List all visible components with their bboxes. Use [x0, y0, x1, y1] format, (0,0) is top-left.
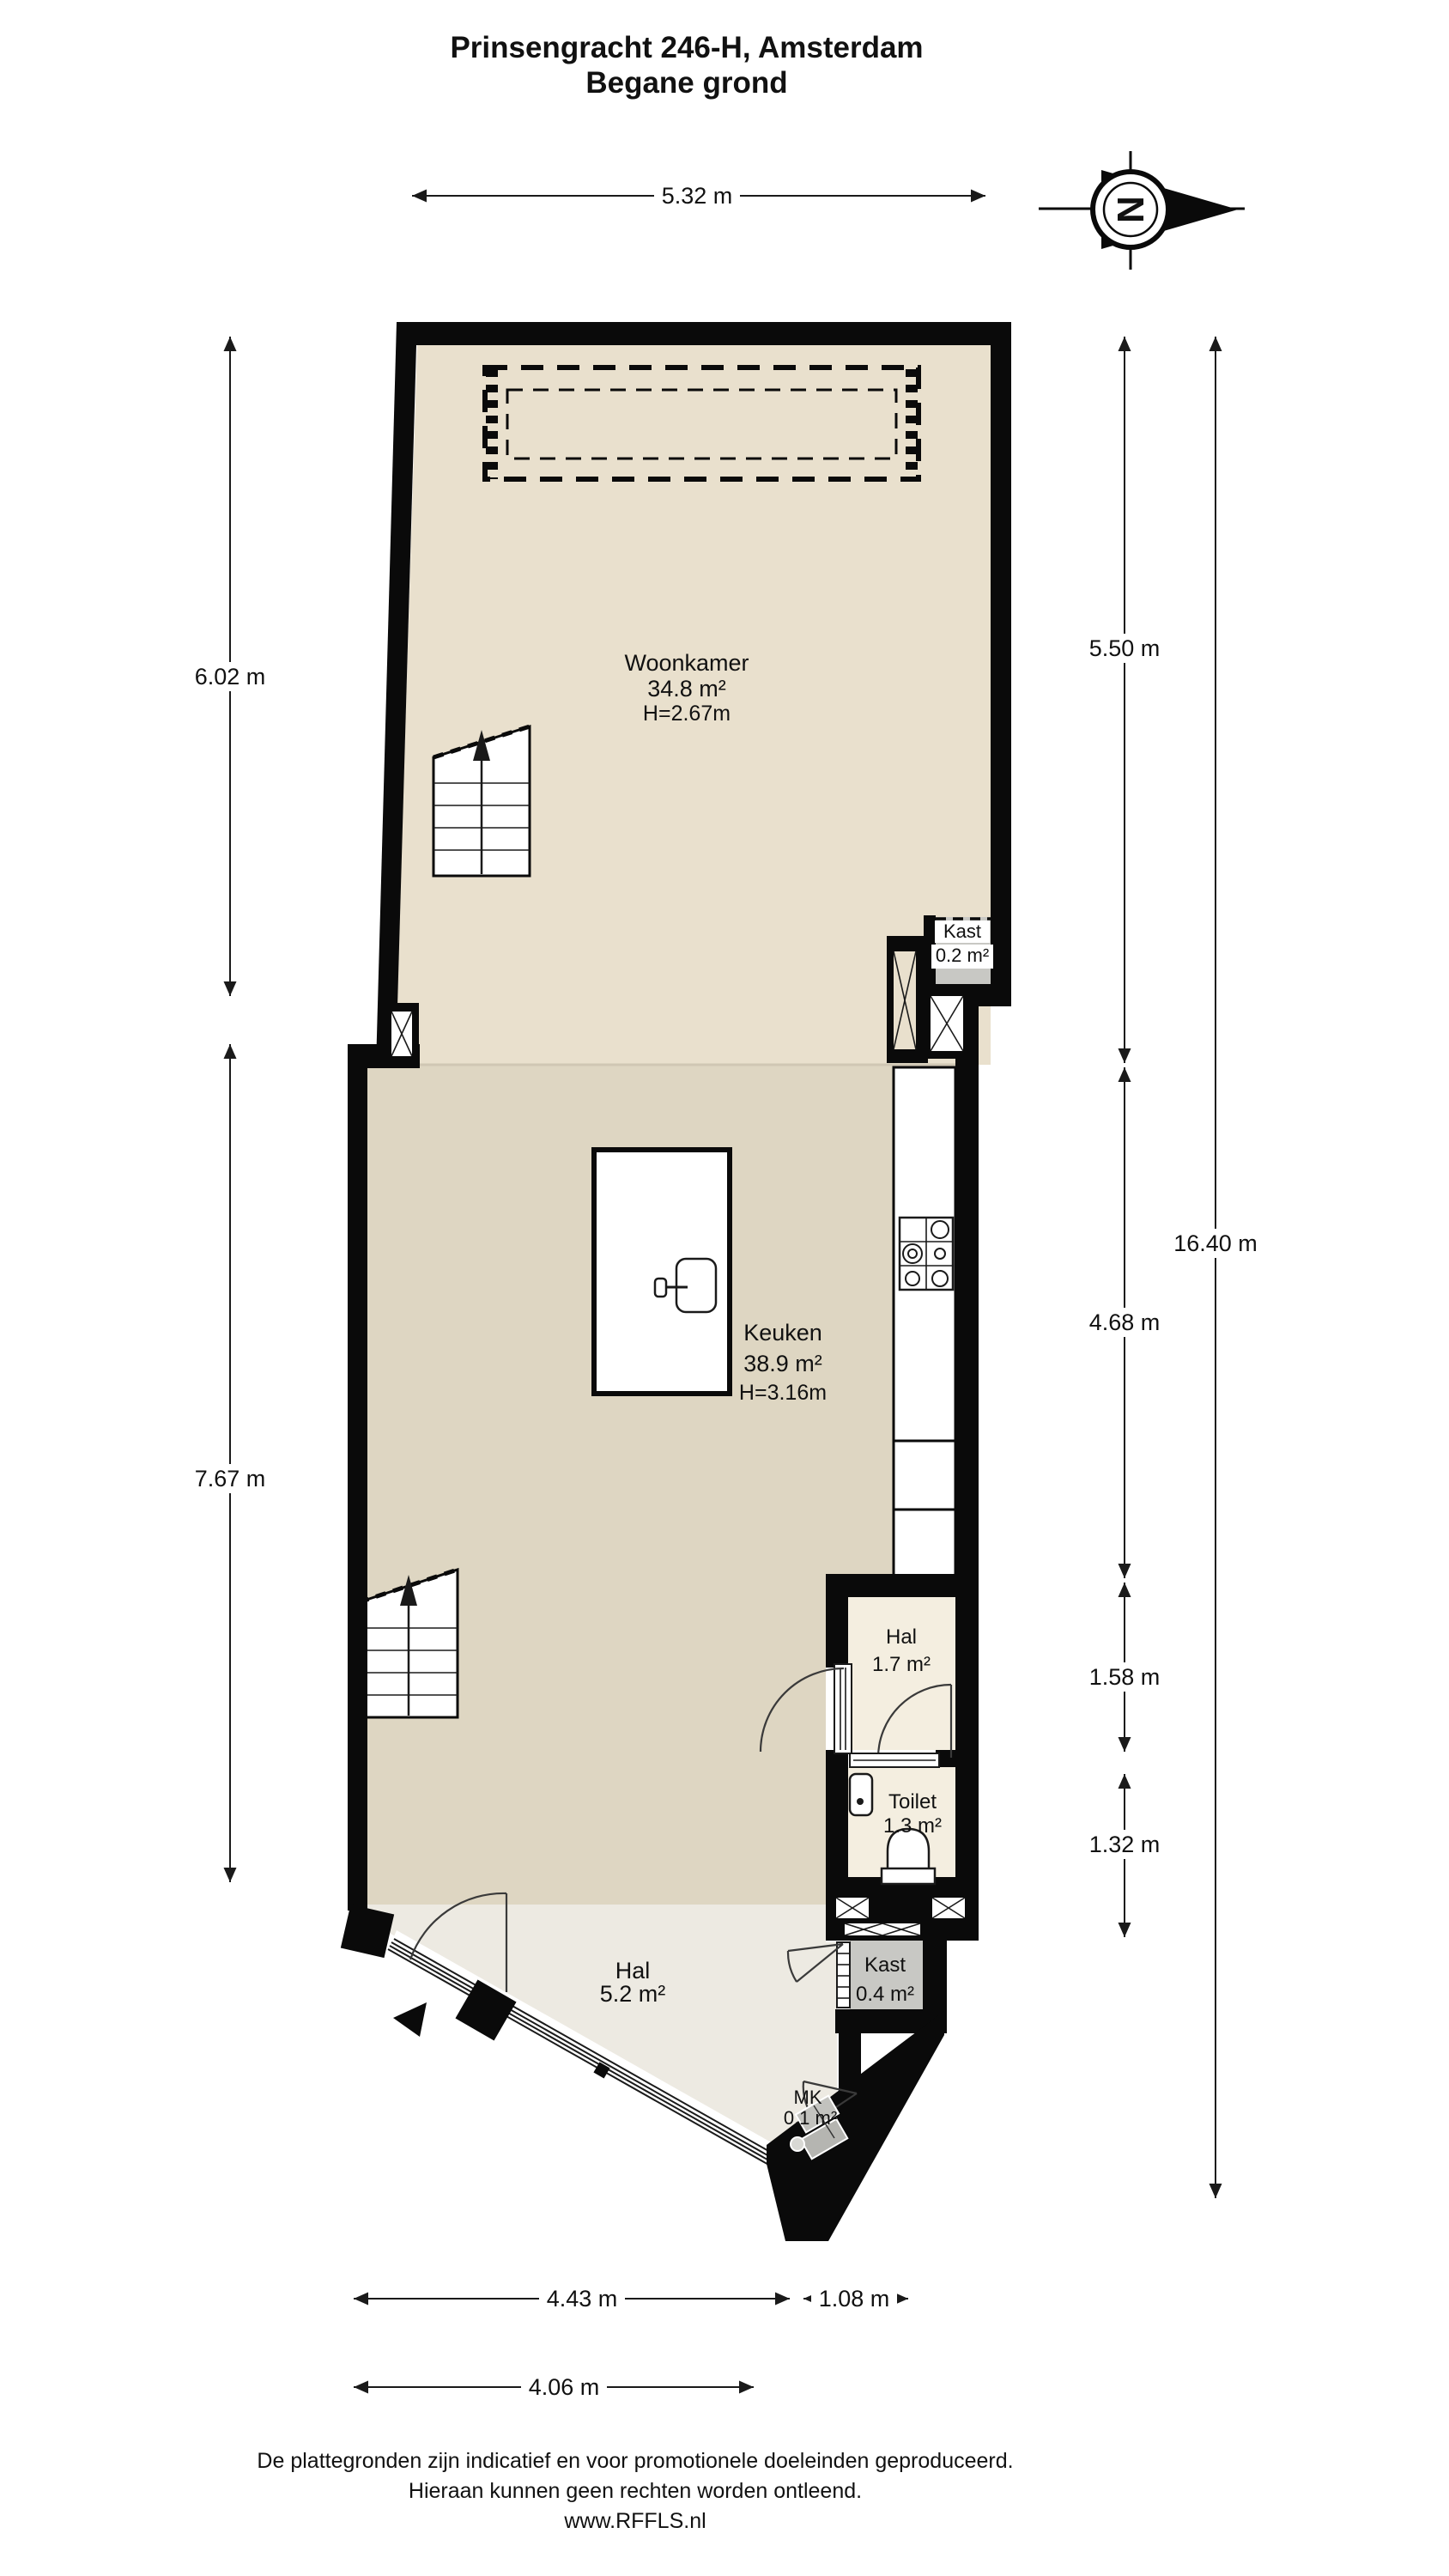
page-title: Prinsengracht 246-H, Amsterdam: [450, 31, 923, 64]
label-hal-klein: Hal: [886, 1625, 917, 1649]
label-kast-boven: Kast: [943, 920, 981, 942]
faucet-icon: [655, 1279, 666, 1297]
label-woonkamer: Woonkamer: [624, 650, 749, 676]
dimension-arrowhead: [224, 1868, 237, 1882]
label-kast-boven-area: 0.2 m²: [936, 945, 989, 966]
label-keuken: Keuken: [743, 1320, 822, 1346]
label-hal-klein-area: 1.7 m²: [872, 1653, 931, 1676]
toilet-sliding-door: [850, 1753, 939, 1767]
dimension-arrowhead: [1210, 337, 1222, 351]
room-hal-groot: [359, 1905, 837, 2145]
label-mk: MK: [794, 2087, 822, 2108]
dimension-label: 4.43 m: [547, 2286, 618, 2312]
dimension-label: 5.50 m: [1089, 635, 1161, 661]
label-kast-onder: Kast: [864, 1953, 906, 1977]
footer-disclaimer-1: De plattegronden zijn indicatief en voor…: [257, 2449, 1013, 2473]
dimension-label: 1.58 m: [1089, 1664, 1161, 1690]
dimension-arrowhead: [1119, 1048, 1131, 1063]
floor-plan: Woonkamer 34.8 m² H=2.67m Keuken 38.9 m²…: [0, 0, 1449, 2576]
dimension-arrowhead: [1119, 1737, 1131, 1752]
dimension-arrowhead: [354, 2381, 368, 2394]
dimension-arrowhead: [775, 2293, 790, 2306]
dimension-arrowhead: [1119, 1067, 1131, 1082]
dimension-label: 16.40 m: [1173, 1230, 1258, 1256]
label-toilet: Toilet: [888, 1790, 937, 1814]
dimension-arrowhead: [1119, 1774, 1131, 1789]
compass-letter: N: [1109, 196, 1151, 223]
label-mk-area: 0.1 m²: [784, 2107, 837, 2129]
dimension-label: 4.68 m: [1089, 1309, 1161, 1335]
kitchen-counter: [894, 1067, 955, 1577]
label-woonkamer-area: 34.8 m²: [647, 676, 726, 702]
dimension-label: 1.08 m: [819, 2286, 890, 2312]
dimension-arrowhead: [224, 337, 237, 351]
dimension-arrowhead: [971, 190, 985, 203]
dimension-arrowhead: [1119, 1923, 1131, 1937]
dimension-arrowhead: [354, 2293, 368, 2306]
floorplan-page: Woonkamer 34.8 m² H=2.67m Keuken 38.9 m²…: [0, 0, 1449, 2576]
dimension-label: 5.32 m: [662, 183, 733, 209]
dimension-arrowhead: [412, 190, 427, 203]
sink: [676, 1259, 716, 1312]
entrance-arrow-icon: [393, 2002, 427, 2037]
dimension-arrowhead: [1210, 2184, 1222, 2198]
footer-disclaimer-2: Hieraan kunnen geen rechten worden ontle…: [409, 2479, 862, 2503]
dimension-label: 7.67 m: [195, 1466, 266, 1492]
mk-wall: [839, 2032, 861, 2099]
toilet-sink: [850, 1774, 872, 1815]
toilet-tank: [882, 1868, 935, 1884]
dimension-arrowhead: [224, 981, 237, 996]
page-subtitle: Begane grond: [585, 66, 787, 100]
dimension-label: 4.06 m: [529, 2374, 600, 2400]
label-keuken-area: 38.9 m²: [743, 1351, 822, 1376]
label-hal-groot-area: 5.2 m²: [600, 1981, 666, 2007]
label-toilet-area: 1.3 m²: [883, 1814, 942, 1838]
dimension-arrowhead: [1119, 1564, 1131, 1578]
footer-website: www.RFFLS.nl: [563, 2509, 706, 2533]
dimension-arrowhead: [224, 1044, 237, 1059]
dimension-arrowhead: [1119, 1583, 1131, 1597]
label-woonkamer-height: H=2.67m: [643, 702, 731, 726]
label-hal-groot: Hal: [615, 1958, 651, 1984]
dimension-arrowhead: [739, 2381, 754, 2394]
dimension-arrowhead: [1119, 337, 1131, 351]
north-compass: N: [1039, 151, 1245, 270]
label-keuken-height: H=3.16m: [739, 1381, 827, 1405]
dimension-label: 6.02 m: [195, 664, 266, 690]
label-kast-onder-area: 0.4 m²: [856, 1983, 914, 2006]
kitchen-island: [594, 1150, 730, 1394]
stove-icon: [900, 1218, 953, 1290]
dimension-label: 1.32 m: [1089, 1832, 1161, 1857]
